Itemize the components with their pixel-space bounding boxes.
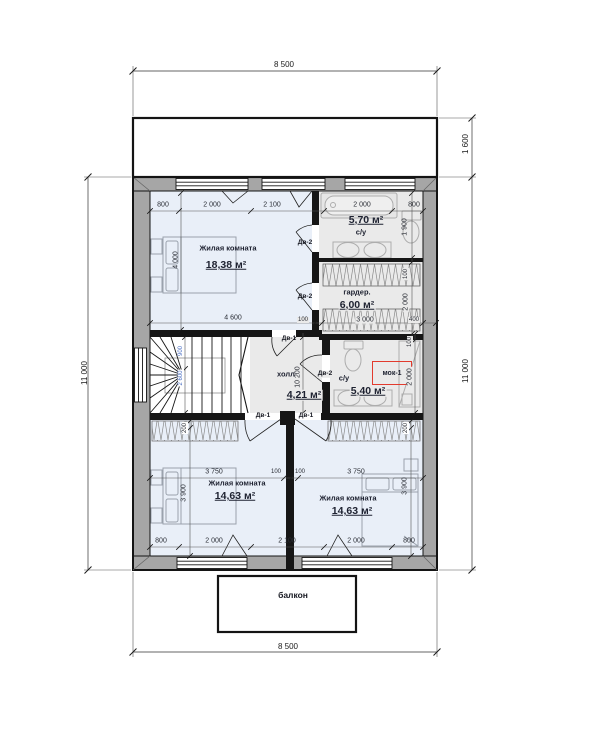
dim-stair-1: 2 600 bbox=[178, 369, 184, 386]
dim-wardrobe-row-1: 3 000 bbox=[355, 317, 375, 324]
dim-bottom-row-2: 2 100 bbox=[278, 538, 296, 545]
dim-bath2-wall: 100 bbox=[407, 336, 413, 348]
room-living2-area: 14,63 м² bbox=[215, 491, 255, 502]
room-wardrobe-name: гардер. bbox=[342, 288, 371, 296]
dim-bottom-row-1: 2 000 bbox=[205, 538, 223, 545]
dim-mid-row-2: 100 bbox=[295, 469, 305, 475]
dim-mid-row-0: 3 750 bbox=[205, 469, 223, 476]
dim-bath2-height: 2 000 bbox=[407, 367, 414, 387]
dim-top-width: 8 500 bbox=[274, 61, 294, 69]
dim-wardrobe-height: 2 000 bbox=[403, 292, 410, 312]
dim-top-row-0: 800 bbox=[157, 202, 169, 209]
dim-hall-height: 10 200 bbox=[295, 365, 302, 388]
room-living3-name: Жилая комната bbox=[319, 494, 376, 502]
balcony-outline bbox=[218, 576, 356, 632]
dim-living3-closet: 200 bbox=[403, 422, 409, 434]
dim-bottom-row-3: 2 000 bbox=[347, 538, 365, 545]
dim-living2-height: 3 900 bbox=[181, 484, 188, 502]
dim-mid-row-3: 3 750 bbox=[347, 469, 365, 476]
window-icon bbox=[176, 179, 248, 190]
dim-wardrobe-wall: 100 bbox=[403, 268, 409, 280]
dim-top-row-1: 2 000 bbox=[203, 202, 221, 209]
room-bath2-area: 5,40 м² bbox=[350, 386, 387, 397]
window-icon bbox=[177, 558, 247, 569]
room-wardrobe-area: 6,00 м² bbox=[339, 300, 376, 311]
room-balcony-name: балкон bbox=[278, 591, 308, 600]
door-label-dv2: Дв-2 bbox=[317, 371, 333, 378]
dim-mid-row-1: 100 bbox=[271, 469, 281, 475]
window-icon bbox=[345, 179, 415, 190]
room-living2-name: Жилая комната bbox=[208, 479, 265, 487]
dim-wardrobe-row-0: 100 bbox=[297, 317, 309, 323]
dim-bath1-height: 1 900 bbox=[402, 218, 409, 236]
dim-right-height: 11 000 bbox=[462, 359, 470, 383]
dim-wardrobe-row-2: 400 bbox=[408, 317, 420, 323]
room-bath2-name: с/у bbox=[339, 374, 349, 382]
floor-plan-drawing bbox=[0, 0, 603, 743]
moisture-zone-label: мок-1 bbox=[382, 370, 401, 377]
dim-living3-height: 3 900 bbox=[402, 477, 409, 495]
dim-bottom-row-0: 800 bbox=[155, 538, 167, 545]
dim-bottom-row-4: 800 bbox=[403, 538, 415, 545]
dim-living1-width: 4 600 bbox=[224, 315, 242, 322]
room-living1-name: Жилая комната bbox=[199, 244, 256, 252]
dim-top-row-3: 2 000 bbox=[353, 202, 371, 209]
window-icon bbox=[302, 558, 392, 569]
door-label-dv1: Дв-1 bbox=[282, 336, 296, 343]
door-label-dv1: Дв-1 bbox=[255, 413, 271, 420]
dim-stair-0: 900 bbox=[178, 345, 184, 357]
door-label-dv2: Дв-2 bbox=[298, 240, 312, 247]
dim-top-row-4: 800 bbox=[408, 202, 420, 209]
room-living3-area: 14,63 м² bbox=[332, 506, 372, 517]
room-bath1-name: с/у bbox=[356, 228, 366, 236]
room-hall-area: 4,21 м² bbox=[286, 390, 323, 401]
room-hall-name: холл bbox=[277, 370, 295, 378]
dim-top-row-2: 2 100 bbox=[263, 202, 281, 209]
dim-left-height: 11 000 bbox=[81, 361, 89, 385]
room-bath1-area: 5,70 м² bbox=[349, 215, 384, 226]
door-label-dv1: Дв-1 bbox=[298, 413, 314, 420]
room-living1-area: 18,38 м² bbox=[206, 260, 246, 271]
window-icon bbox=[262, 179, 325, 190]
dim-living1-height: 4 000 bbox=[173, 251, 180, 269]
window-icon bbox=[135, 348, 147, 402]
floor-plan-sheet: мок-1 8 500 8 500 11 000 11 000 1 600 80… bbox=[0, 0, 603, 743]
dim-terrace-depth: 1 600 bbox=[462, 134, 470, 154]
dim-bottom-width: 8 500 bbox=[278, 643, 298, 651]
dim-living2-closet: 200 bbox=[182, 422, 188, 434]
roof-terrace bbox=[133, 118, 437, 177]
door-label-dv2: Дв-2 bbox=[298, 294, 312, 301]
